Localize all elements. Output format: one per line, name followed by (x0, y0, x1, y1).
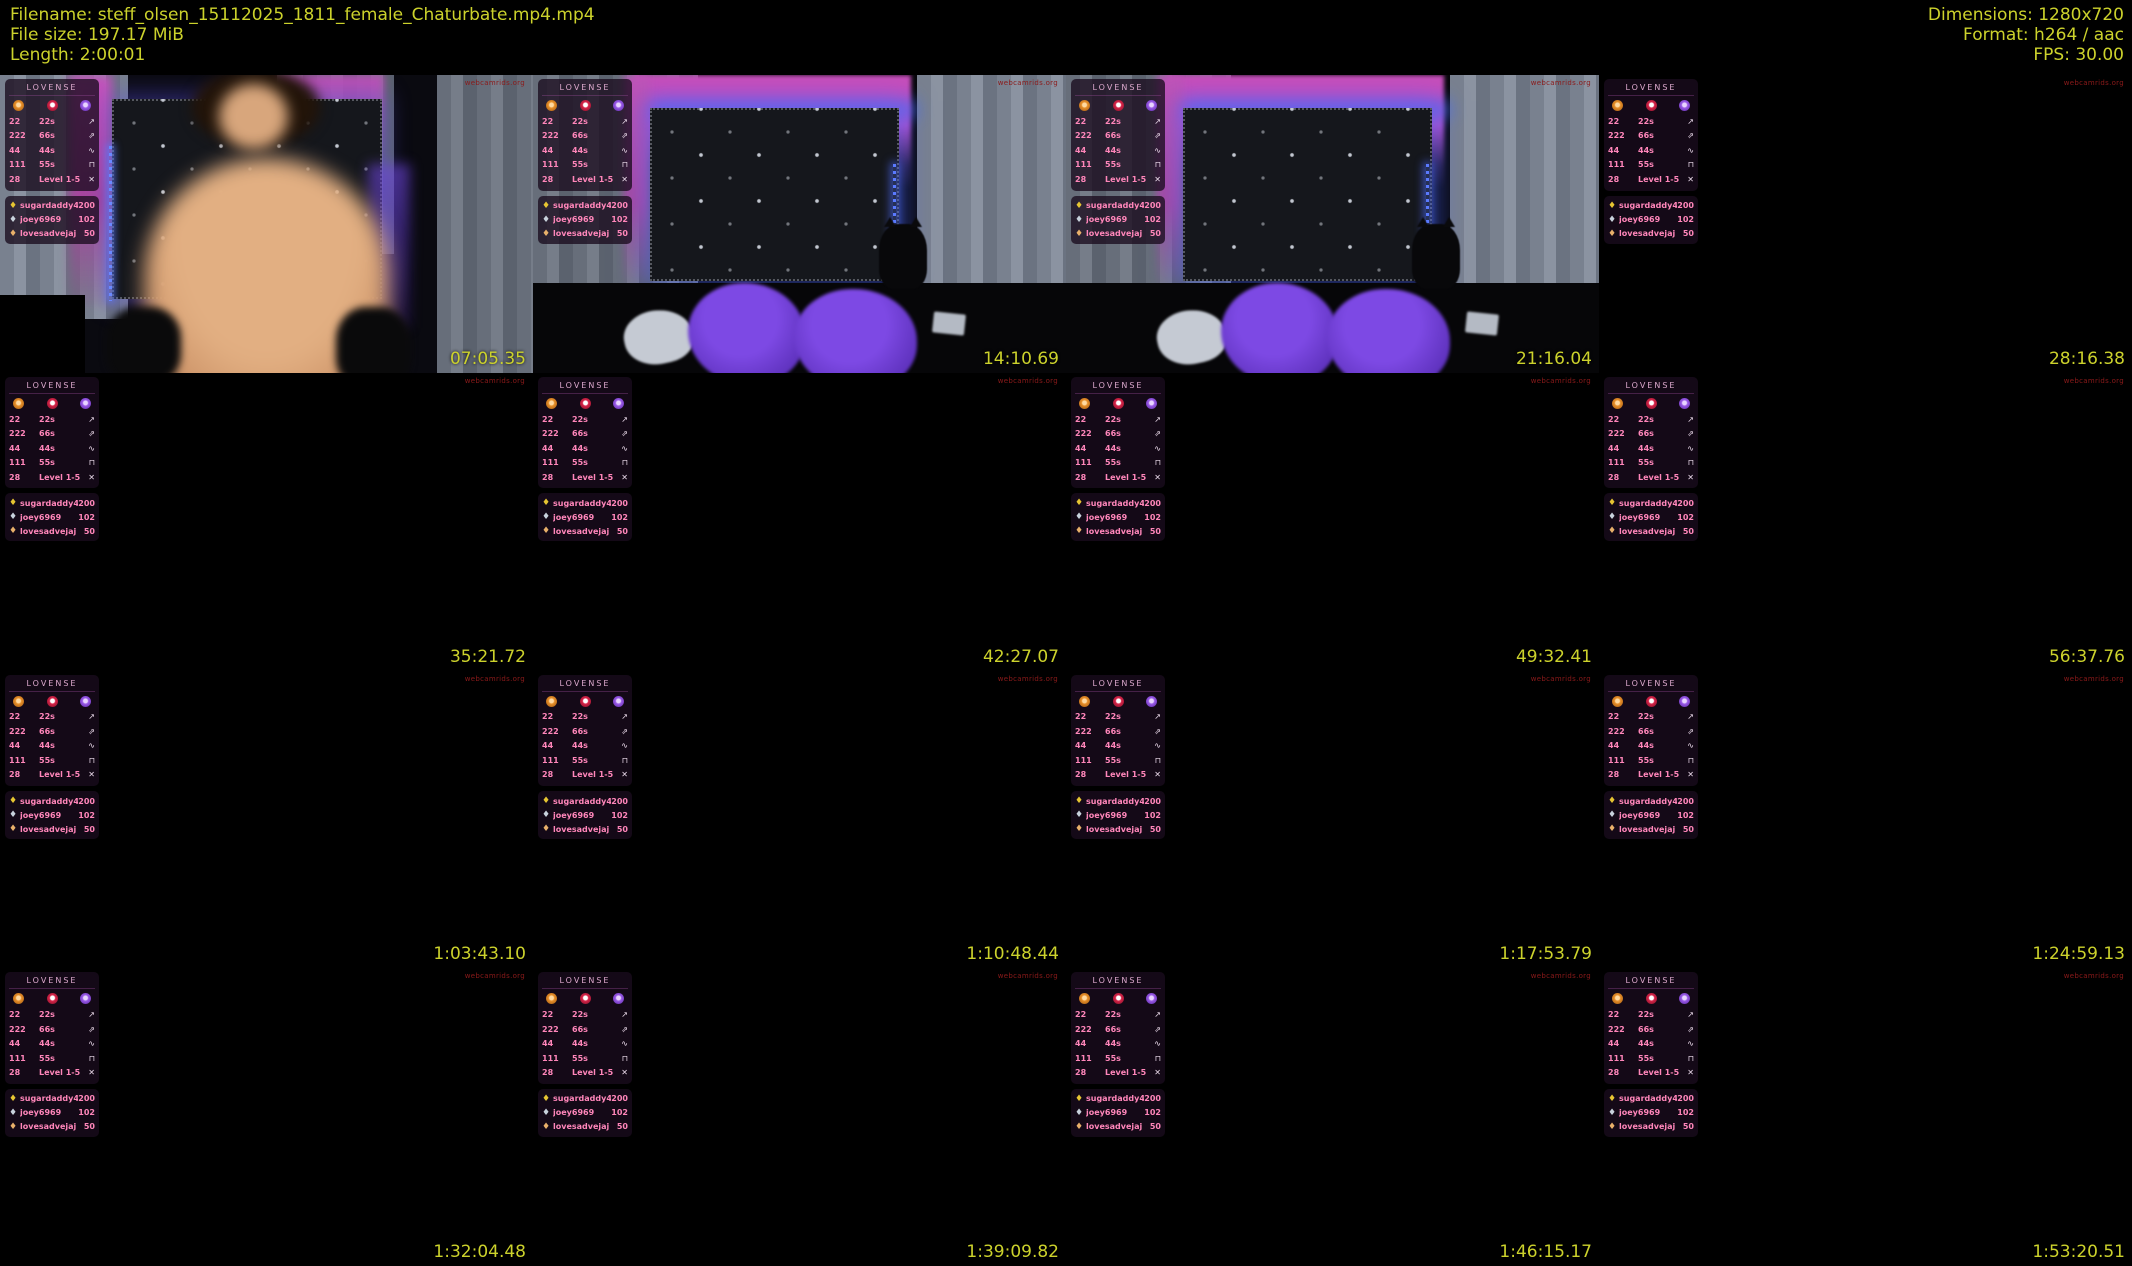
toy-orange-icon (546, 100, 557, 111)
tip-duration: 55s (39, 160, 83, 169)
vibe-pattern-icon: ∿ (83, 444, 95, 453)
vibe-pattern-icon: ⇗ (83, 429, 95, 438)
top-tippers-box: ♦ sugardaddy4me 200 ♦ joey6969 102 ♦ lov… (538, 196, 632, 244)
tipper-amount: 200 (1144, 797, 1161, 806)
tip-menu-row: 28 Level 1-5 ✕ (542, 768, 628, 783)
top-tippers-box: ♦ sugardaddy4me 200 ♦ joey6969 102 ♦ lov… (1071, 196, 1165, 244)
vibe-pattern-icon: ⇗ (1149, 727, 1161, 736)
tip-menu-row: 222 66s ⇗ (542, 129, 628, 144)
tipper-row: ♦ joey6969 102 (1608, 1106, 1694, 1120)
toy-icons (1075, 394, 1161, 412)
tip-menu-row: 22 22s ↗ (542, 710, 628, 725)
watermark-text: webcamrids.org (465, 377, 525, 385)
tip-duration: 44s (1105, 1039, 1149, 1048)
tip-amount: 44 (1608, 146, 1638, 155)
tipper-badge-icon: ♦ (9, 824, 20, 834)
vibe-pattern-icon: ⊓ (1149, 1054, 1161, 1063)
tip-amount: 28 (542, 473, 572, 482)
tip-duration: Level 1-5 (1638, 473, 1682, 482)
tipper-row: ♦ lovesadvejaj 50 (542, 1120, 628, 1134)
tip-amount: 222 (1075, 727, 1105, 736)
tipper-name: lovesadvejaj (1086, 825, 1150, 834)
tip-duration: Level 1-5 (572, 1068, 616, 1077)
tipper-name: sugardaddy4me (553, 1094, 611, 1103)
tip-duration: 44s (1638, 146, 1682, 155)
tipper-amount: 102 (1144, 513, 1161, 522)
tip-menu-row: 222 66s ⇗ (1075, 426, 1161, 441)
tip-menu-row: 22 22s ↗ (1608, 114, 1694, 129)
toy-purple-icon (613, 993, 624, 1004)
toy-red-icon (1113, 696, 1124, 707)
tipper-row: ♦ lovesadvejaj 50 (9, 227, 95, 241)
tip-duration: 55s (1105, 1054, 1149, 1063)
tip-menu-row: 44 44s ∿ (1608, 441, 1694, 456)
tip-menu-row: 222 66s ⇗ (1608, 129, 1694, 144)
tipper-name: joey6969 (1619, 1108, 1677, 1117)
vibe-pattern-icon: ✕ (1682, 770, 1694, 779)
lovense-tip-menu: LOVENSE 22 22s ↗ 222 66s ⇗ 44 (538, 972, 632, 1084)
tip-amount: 111 (9, 1054, 39, 1063)
lovense-title: LOVENSE (1075, 974, 1161, 989)
tip-amount: 28 (9, 1068, 39, 1077)
tip-amount: 22 (9, 415, 39, 424)
tip-amount: 22 (9, 117, 39, 126)
vibe-pattern-icon: ⇗ (616, 1025, 628, 1034)
lovense-overlay: LOVENSE 22 22s ↗ 222 66s ⇗ 44 (1604, 377, 1698, 542)
tipper-amount: 200 (1677, 201, 1694, 210)
tip-duration: 55s (39, 458, 83, 467)
tip-amount: 111 (1608, 160, 1638, 169)
tip-menu-row: 222 66s ⇗ (1608, 426, 1694, 441)
tipper-row: ♦ lovesadvejaj 50 (1608, 1120, 1694, 1134)
tip-amount: 111 (542, 1054, 572, 1063)
tipper-name: sugardaddy4me (1619, 499, 1677, 508)
tip-menu-row: 22 22s ↗ (1608, 1007, 1694, 1022)
tip-menu-row: 22 22s ↗ (9, 1007, 95, 1022)
tipper-name: joey6969 (1619, 811, 1677, 820)
lovense-tip-menu: LOVENSE 22 22s ↗ 222 66s ⇗ 44 (538, 79, 632, 191)
vibe-pattern-icon: ⊓ (1682, 160, 1694, 169)
thumbnail-cell: LOVENSE 22 22s ↗ 222 66s ⇗ 44 (1599, 968, 2132, 1266)
tip-duration: 66s (572, 429, 616, 438)
tip-duration: 66s (572, 727, 616, 736)
tip-menu-row: 28 Level 1-5 ✕ (9, 768, 95, 783)
tip-menu-row: 111 55s ⊓ (1075, 753, 1161, 768)
toy-red-icon (1113, 100, 1124, 111)
tipper-badge-icon: ♦ (1075, 1108, 1086, 1118)
toy-red-icon (47, 993, 58, 1004)
lovense-title: LOVENSE (9, 974, 95, 989)
lovense-overlay: LOVENSE 22 22s ↗ 222 66s ⇗ 44 (5, 972, 99, 1137)
tip-duration: 44s (39, 741, 83, 750)
tipper-amount: 50 (617, 1122, 628, 1131)
tip-menu-row: 28 Level 1-5 ✕ (542, 470, 628, 485)
vibe-pattern-icon: ↗ (616, 415, 628, 424)
tip-duration: 55s (572, 756, 616, 765)
tipper-name: lovesadvejaj (1086, 229, 1150, 238)
tip-menu-row: 28 Level 1-5 ✕ (542, 1065, 628, 1080)
tipper-row: ♦ sugardaddy4me 200 (1075, 496, 1161, 510)
tip-duration: 66s (39, 429, 83, 438)
tipper-amount: 200 (1144, 1094, 1161, 1103)
tip-amount: 44 (9, 444, 39, 453)
tipper-row: ♦ lovesadvejaj 50 (1075, 524, 1161, 538)
lovense-title: LOVENSE (542, 379, 628, 394)
toy-icons (542, 692, 628, 710)
tipper-badge-icon: ♦ (542, 1122, 553, 1132)
tip-menu-row: 22 22s ↗ (542, 1007, 628, 1022)
watermark-text: webcamrids.org (1531, 377, 1591, 385)
tip-amount: 44 (9, 1039, 39, 1048)
thumbnail-cell: LOVENSE 22 22s ↗ 222 66s ⇗ 44 (0, 671, 533, 969)
vibe-pattern-icon: ✕ (1149, 175, 1161, 184)
toy-icons (542, 96, 628, 114)
thumbnail-cell: LOVENSE 22 22s ↗ 222 66s ⇗ 44 (1066, 373, 1599, 671)
tipper-name: joey6969 (1619, 513, 1677, 522)
tip-amount: 28 (1075, 175, 1105, 184)
lovense-tip-menu: LOVENSE 22 22s ↗ 222 66s ⇗ 44 (1604, 79, 1698, 191)
lovense-overlay: LOVENSE 22 22s ↗ 222 66s ⇗ 44 (5, 79, 99, 244)
tip-amount: 22 (1608, 415, 1638, 424)
tip-menu-row: 111 55s ⊓ (9, 455, 95, 470)
tip-menu-row: 28 Level 1-5 ✕ (1075, 768, 1161, 783)
vibe-pattern-icon: ∿ (616, 146, 628, 155)
lovense-overlay: LOVENSE 22 22s ↗ 222 66s ⇗ 44 (1071, 972, 1165, 1137)
tipper-name: sugardaddy4me (20, 201, 78, 210)
tip-menu-row: 222 66s ⇗ (542, 1022, 628, 1037)
tip-amount: 111 (9, 160, 39, 169)
thumbnail-grid: LOVENSE 22 22s ↗ 222 66s ⇗ 44 (0, 75, 2132, 1266)
tipper-badge-icon: ♦ (1608, 229, 1619, 239)
toy-icons (1608, 989, 1694, 1007)
tip-menu-row: 222 66s ⇗ (1608, 1022, 1694, 1037)
tip-menu-row: 28 Level 1-5 ✕ (1075, 1065, 1161, 1080)
tipper-badge-icon: ♦ (9, 498, 20, 508)
tip-amount: 28 (1608, 770, 1638, 779)
vibe-pattern-icon: ⇗ (616, 727, 628, 736)
tip-amount: 111 (9, 756, 39, 765)
toy-red-icon (580, 100, 591, 111)
tip-menu-row: 22 22s ↗ (1075, 1007, 1161, 1022)
tip-amount: 44 (1608, 741, 1638, 750)
toy-red-icon (1113, 398, 1124, 409)
top-tippers-box: ♦ sugardaddy4me 200 ♦ joey6969 102 ♦ lov… (1604, 791, 1698, 839)
watermark-text: webcamrids.org (998, 79, 1058, 87)
tip-menu-row: 44 44s ∿ (9, 739, 95, 754)
tip-amount: 44 (542, 741, 572, 750)
tipper-amount: 50 (1150, 229, 1161, 238)
toy-icons (1075, 692, 1161, 710)
tip-amount: 44 (1075, 444, 1105, 453)
tip-duration: 66s (39, 1025, 83, 1034)
tip-amount: 44 (1608, 444, 1638, 453)
tipper-amount: 200 (611, 201, 628, 210)
toy-orange-icon (546, 398, 557, 409)
toy-orange-icon (1079, 993, 1090, 1004)
tip-amount: 111 (1075, 160, 1105, 169)
tip-menu-row: 222 66s ⇗ (1608, 724, 1694, 739)
lovense-tip-menu: LOVENSE 22 22s ↗ 222 66s ⇗ 44 (5, 79, 99, 191)
tipper-row: ♦ sugardaddy4me 200 (542, 496, 628, 510)
toy-red-icon (47, 100, 58, 111)
vibe-pattern-icon: ✕ (616, 1068, 628, 1077)
vibe-pattern-icon: ∿ (83, 146, 95, 155)
tip-duration: 22s (39, 117, 83, 126)
tipper-row: ♦ sugardaddy4me 200 (1075, 1092, 1161, 1106)
tipper-name: joey6969 (20, 811, 78, 820)
thumbnail-cell: LOVENSE 22 22s ↗ 222 66s ⇗ 44 (533, 75, 1066, 373)
tip-duration: 44s (572, 1039, 616, 1048)
tipper-amount: 102 (78, 811, 95, 820)
tip-menu-row: 111 55s ⊓ (9, 1051, 95, 1066)
vibe-pattern-icon: ∿ (1149, 146, 1161, 155)
tipper-badge-icon: ♦ (1608, 1108, 1619, 1118)
tipper-name: sugardaddy4me (1619, 1094, 1677, 1103)
vibe-pattern-icon: ⊓ (83, 756, 95, 765)
toy-orange-icon (13, 398, 24, 409)
watermark-text: webcamrids.org (998, 377, 1058, 385)
tip-duration: 55s (39, 1054, 83, 1063)
tip-duration: 55s (1105, 458, 1149, 467)
tip-amount: 222 (1608, 429, 1638, 438)
tipper-name: lovesadvejaj (20, 1122, 84, 1131)
vibe-pattern-icon: ⊓ (83, 458, 95, 467)
tipper-badge-icon: ♦ (542, 1108, 553, 1118)
tipper-name: lovesadvejaj (20, 527, 84, 536)
timestamp: 21:16.04 (1516, 349, 1592, 369)
tip-duration: 22s (1105, 415, 1149, 424)
tipper-row: ♦ sugardaddy4me 200 (9, 794, 95, 808)
tip-duration: 55s (1105, 756, 1149, 765)
watermark-text: webcamrids.org (465, 79, 525, 87)
tipper-row: ♦ sugardaddy4me 200 (1608, 199, 1694, 213)
tipper-row: ♦ joey6969 102 (1075, 808, 1161, 822)
tipper-amount: 50 (1150, 825, 1161, 834)
timestamp: 49:32.41 (1516, 647, 1592, 667)
tipper-row: ♦ joey6969 102 (1075, 510, 1161, 524)
tip-amount: 28 (9, 473, 39, 482)
dimensions-text: Dimensions: 1280x720 (1928, 5, 2124, 25)
vibe-pattern-icon: ⇗ (616, 429, 628, 438)
tipper-badge-icon: ♦ (542, 512, 553, 522)
toy-red-icon (580, 398, 591, 409)
tip-amount: 111 (542, 756, 572, 765)
led-strip (109, 146, 112, 301)
tipper-badge-icon: ♦ (9, 201, 20, 211)
tipper-amount: 102 (1144, 215, 1161, 224)
toy-icons (9, 96, 95, 114)
tip-amount: 28 (542, 1068, 572, 1077)
tipper-name: lovesadvejaj (553, 1122, 617, 1131)
tip-menu-row: 111 55s ⊓ (1075, 158, 1161, 173)
vibe-pattern-icon: ↗ (616, 712, 628, 721)
tipper-amount: 200 (1144, 499, 1161, 508)
tip-menu-row: 28 Level 1-5 ✕ (1608, 172, 1694, 187)
tip-amount: 111 (542, 160, 572, 169)
tip-duration: 22s (572, 117, 616, 126)
tip-menu-row: 22 22s ↗ (9, 412, 95, 427)
tipper-name: sugardaddy4me (553, 499, 611, 508)
tipper-name: lovesadvejaj (20, 229, 84, 238)
vibe-pattern-icon: ↗ (1149, 117, 1161, 126)
filename-text: Filename: steff_olsen_15112025_1811_fema… (10, 5, 595, 25)
timestamp: 1:46:15.17 (1499, 1242, 1592, 1262)
watermark-text: webcamrids.org (998, 675, 1058, 683)
tipper-badge-icon: ♦ (542, 796, 553, 806)
tip-menu-row: 28 Level 1-5 ✕ (542, 172, 628, 187)
lovense-tip-menu: LOVENSE 22 22s ↗ 222 66s ⇗ 44 (538, 675, 632, 787)
dark-furniture (0, 295, 85, 372)
lovense-title: LOVENSE (1075, 677, 1161, 692)
tip-amount: 44 (9, 741, 39, 750)
tip-menu-row: 111 55s ⊓ (542, 455, 628, 470)
tip-menu-row: 111 55s ⊓ (9, 158, 95, 173)
tip-duration: 66s (1638, 1025, 1682, 1034)
tipper-amount: 50 (1683, 825, 1694, 834)
vibe-pattern-icon: ∿ (83, 1039, 95, 1048)
tipper-name: joey6969 (1086, 811, 1144, 820)
tip-menu-row: 44 44s ∿ (542, 143, 628, 158)
tipper-name: lovesadvejaj (553, 825, 617, 834)
tipper-badge-icon: ♦ (9, 1122, 20, 1132)
vibe-pattern-icon: ↗ (616, 1010, 628, 1019)
tip-duration: 66s (1105, 1025, 1149, 1034)
tip-duration: 55s (39, 756, 83, 765)
timestamp: 42:27.07 (983, 647, 1059, 667)
tip-menu-row: 111 55s ⊓ (1608, 1051, 1694, 1066)
tipper-name: joey6969 (1086, 513, 1144, 522)
tip-duration: 44s (1638, 1039, 1682, 1048)
vibe-pattern-icon: ✕ (83, 770, 95, 779)
vibe-pattern-icon: ↗ (83, 117, 95, 126)
tip-duration: 44s (39, 146, 83, 155)
tipper-badge-icon: ♦ (1608, 498, 1619, 508)
tipper-badge-icon: ♦ (1075, 810, 1086, 820)
vibe-pattern-icon: ∿ (1682, 1039, 1694, 1048)
lovense-tip-menu: LOVENSE 22 22s ↗ 222 66s ⇗ 44 (5, 675, 99, 787)
top-tippers-box: ♦ sugardaddy4me 200 ♦ joey6969 102 ♦ lov… (5, 493, 99, 541)
file-metadata: Filename: steff_olsen_15112025_1811_fema… (10, 5, 595, 65)
tipper-badge-icon: ♦ (1075, 201, 1086, 211)
tipper-row: ♦ lovesadvejaj 50 (1608, 524, 1694, 538)
tip-amount: 22 (542, 415, 572, 424)
tip-duration: Level 1-5 (39, 175, 83, 184)
tip-menu-row: 222 66s ⇗ (1075, 724, 1161, 739)
tipper-amount: 102 (1677, 215, 1694, 224)
tip-duration: 66s (1105, 429, 1149, 438)
tipper-row: ♦ sugardaddy4me 200 (1608, 496, 1694, 510)
vibe-pattern-icon: ⇗ (1149, 131, 1161, 140)
tip-duration: 22s (39, 1010, 83, 1019)
tip-duration: 55s (572, 1054, 616, 1063)
toy-icons (9, 394, 95, 412)
vibe-pattern-icon: ∿ (1149, 444, 1161, 453)
tipper-name: joey6969 (20, 215, 78, 224)
tipper-row: ♦ sugardaddy4me 200 (1075, 794, 1161, 808)
tip-menu-row: 111 55s ⊓ (1075, 455, 1161, 470)
tipper-badge-icon: ♦ (1608, 201, 1619, 211)
tip-duration: 66s (39, 727, 83, 736)
tip-duration: 44s (1105, 741, 1149, 750)
tipper-amount: 50 (1683, 527, 1694, 536)
vibe-pattern-icon: ⇗ (1149, 429, 1161, 438)
tipper-amount: 200 (78, 201, 95, 210)
tipper-name: lovesadvejaj (553, 527, 617, 536)
tip-amount: 22 (9, 712, 39, 721)
tipper-name: sugardaddy4me (1086, 499, 1144, 508)
tipper-amount: 102 (1144, 811, 1161, 820)
tip-amount: 222 (542, 131, 572, 140)
toy-red-icon (47, 398, 58, 409)
tipper-amount: 200 (1144, 201, 1161, 210)
tipper-name: lovesadvejaj (1086, 527, 1150, 536)
vibe-pattern-icon: ⊓ (1149, 458, 1161, 467)
tip-amount: 28 (542, 175, 572, 184)
vibe-pattern-icon: ✕ (1682, 175, 1694, 184)
top-tippers-box: ♦ sugardaddy4me 200 ♦ joey6969 102 ♦ lov… (5, 791, 99, 839)
vibe-pattern-icon: ⇗ (1682, 429, 1694, 438)
tip-duration: 44s (1105, 444, 1149, 453)
tip-menu-row: 44 44s ∿ (1075, 143, 1161, 158)
fps-text: FPS: 30.00 (1928, 45, 2124, 65)
lovense-tip-menu: LOVENSE 22 22s ↗ 222 66s ⇗ 44 (1071, 79, 1165, 191)
tipper-name: lovesadvejaj (20, 825, 84, 834)
tip-amount: 111 (1608, 756, 1638, 765)
top-tippers-box: ♦ sugardaddy4me 200 ♦ joey6969 102 ♦ lov… (1071, 1089, 1165, 1137)
tipper-row: ♦ joey6969 102 (9, 510, 95, 524)
tip-amount: 111 (1075, 756, 1105, 765)
tip-amount: 222 (1075, 1025, 1105, 1034)
toy-orange-icon (1612, 100, 1623, 111)
tip-menu-row: 111 55s ⊓ (1608, 455, 1694, 470)
tipper-name: sugardaddy4me (1619, 797, 1677, 806)
vibe-pattern-icon: ✕ (1682, 473, 1694, 482)
tipper-amount: 102 (78, 513, 95, 522)
lovense-title: LOVENSE (1608, 677, 1694, 692)
tip-amount: 222 (9, 1025, 39, 1034)
top-tippers-box: ♦ sugardaddy4me 200 ♦ joey6969 102 ♦ lov… (1604, 1089, 1698, 1137)
vibe-pattern-icon: ↗ (1682, 415, 1694, 424)
timestamp: 1:39:09.82 (966, 1242, 1059, 1262)
vibe-pattern-icon: ↗ (83, 1010, 95, 1019)
tipper-amount: 200 (611, 797, 628, 806)
vibe-pattern-icon: ↗ (1682, 1010, 1694, 1019)
lovense-overlay: LOVENSE 22 22s ↗ 222 66s ⇗ 44 (1071, 377, 1165, 542)
lovense-overlay: LOVENSE 22 22s ↗ 222 66s ⇗ 44 (1071, 675, 1165, 840)
lovense-tip-menu: LOVENSE 22 22s ↗ 222 66s ⇗ 44 (1604, 972, 1698, 1084)
lovense-overlay: LOVENSE 22 22s ↗ 222 66s ⇗ 44 (538, 972, 632, 1137)
tip-menu-row: 22 22s ↗ (542, 412, 628, 427)
lovense-title: LOVENSE (542, 974, 628, 989)
tip-amount: 28 (1608, 1068, 1638, 1077)
timestamp: 1:32:04.48 (433, 1242, 526, 1262)
vibe-pattern-icon: ⇗ (83, 1025, 95, 1034)
tip-duration: Level 1-5 (39, 1068, 83, 1077)
tipper-amount: 50 (617, 527, 628, 536)
tip-amount: 111 (1075, 1054, 1105, 1063)
tip-duration: Level 1-5 (1105, 1068, 1149, 1077)
toy-red-icon (47, 696, 58, 707)
lovense-tip-menu: LOVENSE 22 22s ↗ 222 66s ⇗ 44 (1604, 377, 1698, 489)
tipper-row: ♦ lovesadvejaj 50 (9, 822, 95, 836)
tip-amount: 44 (542, 444, 572, 453)
tipper-badge-icon: ♦ (1075, 229, 1086, 239)
toy-orange-icon (13, 993, 24, 1004)
toy-purple-icon (613, 100, 624, 111)
vibe-pattern-icon: ⊓ (1149, 160, 1161, 169)
tipper-amount: 50 (1150, 1122, 1161, 1131)
tipper-row: ♦ joey6969 102 (9, 808, 95, 822)
